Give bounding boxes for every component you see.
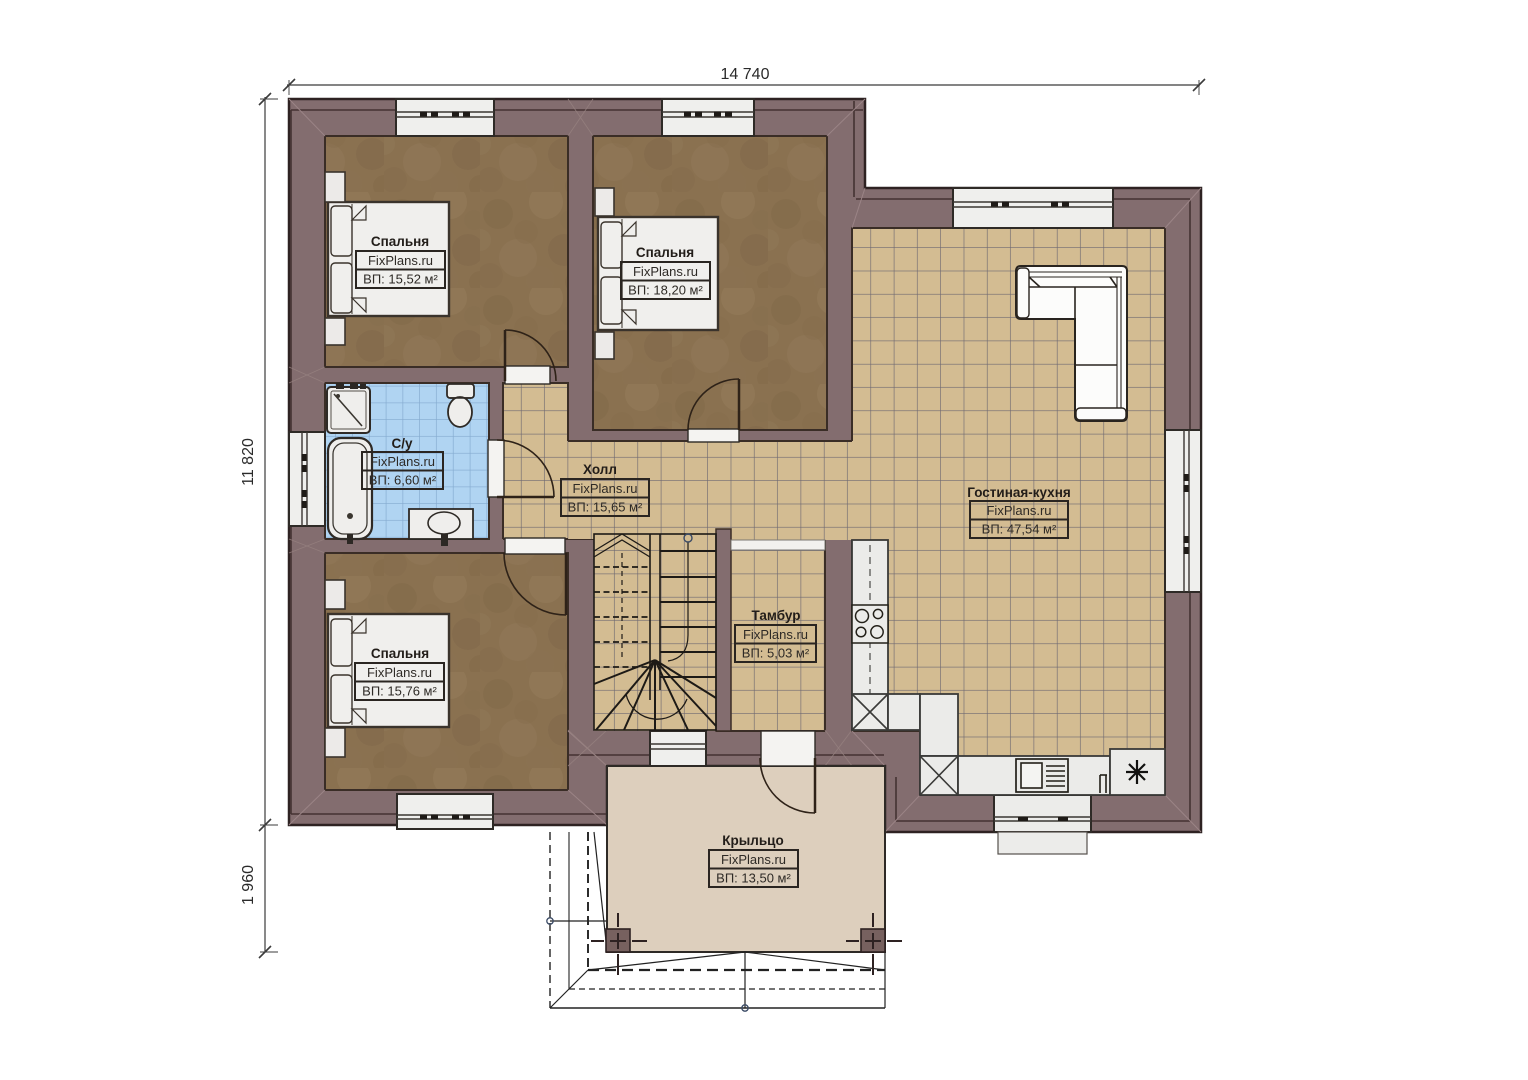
svg-text:ВП: 5,03 м²: ВП: 5,03 м² <box>742 646 810 661</box>
svg-text:ВП: 15,52 м²: ВП: 15,52 м² <box>363 272 438 287</box>
svg-text:Гостиная-кухня: Гостиная-кухня <box>967 485 1070 500</box>
svg-text:ВП: 15,76 м²: ВП: 15,76 м² <box>362 684 437 699</box>
svg-text:Холл: Холл <box>583 462 617 477</box>
svg-text:ВП: 15,65 м²: ВП: 15,65 м² <box>568 500 643 515</box>
svg-text:FixPlans.ru: FixPlans.ru <box>743 627 808 642</box>
svg-text:Спальня: Спальня <box>371 234 429 249</box>
svg-text:С/у: С/у <box>391 436 413 451</box>
svg-text:FixPlans.ru: FixPlans.ru <box>370 454 435 469</box>
svg-text:14 740: 14 740 <box>721 66 770 83</box>
svg-text:ВП: 13,50 м²: ВП: 13,50 м² <box>716 871 791 886</box>
svg-text:ВП: 18,20 м²: ВП: 18,20 м² <box>628 283 703 298</box>
svg-text:FixPlans.ru: FixPlans.ru <box>368 253 433 268</box>
svg-text:Спальня: Спальня <box>371 646 429 661</box>
svg-text:ВП: 6,60 м²: ВП: 6,60 м² <box>369 473 437 488</box>
svg-text:Крыльцо: Крыльцо <box>722 833 783 848</box>
svg-text:FixPlans.ru: FixPlans.ru <box>367 665 432 680</box>
svg-text:FixPlans.ru: FixPlans.ru <box>986 503 1051 518</box>
svg-text:Спальня: Спальня <box>636 245 694 260</box>
svg-text:ВП: 47,54 м²: ВП: 47,54 м² <box>982 522 1057 537</box>
svg-text:FixPlans.ru: FixPlans.ru <box>572 481 637 496</box>
svg-text:1 960: 1 960 <box>240 865 257 905</box>
svg-text:FixPlans.ru: FixPlans.ru <box>633 264 698 279</box>
svg-text:FixPlans.ru: FixPlans.ru <box>721 852 786 867</box>
svg-text:11 820: 11 820 <box>240 438 257 486</box>
svg-text:Тамбур: Тамбур <box>752 608 801 623</box>
